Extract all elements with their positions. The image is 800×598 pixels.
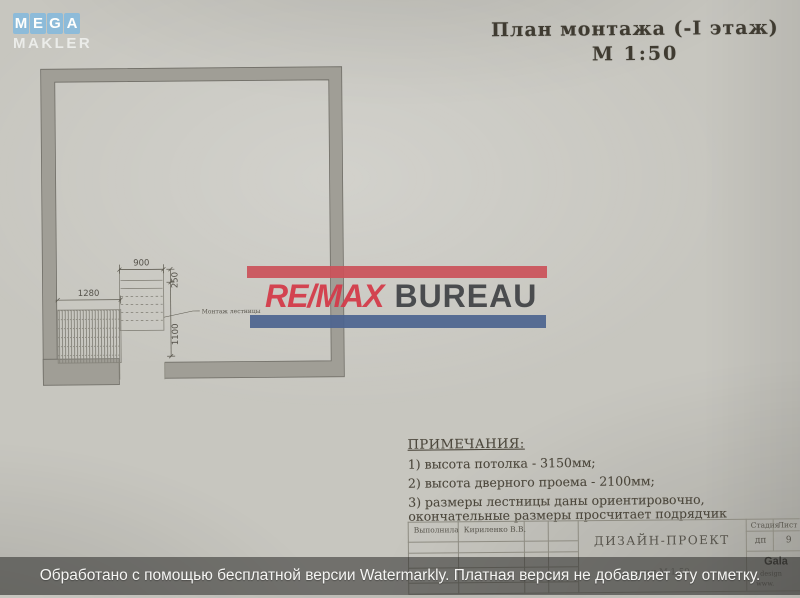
mega-tile: A — [64, 13, 80, 34]
mega-tile: G — [47, 13, 63, 34]
mega-tile: M — [13, 13, 29, 34]
remax-watermark: RE/MAX BUREAU — [247, 266, 547, 328]
stairs-leader-line — [164, 311, 200, 317]
remax-blue-bar — [250, 315, 546, 328]
dimension-1280-text: 1280 — [78, 289, 100, 299]
remax-bureau-text: BUREAU — [394, 278, 537, 314]
dimension-1100-text: 1100 — [171, 323, 181, 345]
remax-red-bar — [247, 266, 547, 278]
mega-makler-logo: M E G A MAKLER — [13, 13, 92, 52]
note-item: 2) высота дверного проема - 2100мм; — [408, 473, 753, 491]
watermarkly-bar: Обработано с помощью бесплатной версии W… — [0, 557, 800, 595]
dimension-250-text: 250 — [170, 272, 180, 288]
mega-logo-subtitle: MAKLER — [13, 35, 92, 52]
list-value: 9 — [786, 535, 792, 545]
mega-tile: E — [30, 13, 46, 34]
bottom-wall-opening — [120, 361, 165, 381]
author-value: Кириленко В.В. — [464, 525, 526, 535]
author-label: Выполнила — [414, 525, 459, 534]
list-label: Лист — [778, 520, 798, 529]
stair-flight-upper — [119, 269, 164, 330]
note-item: 1) высота потолка - 3150мм; — [408, 454, 753, 472]
mega-logo-tiles: M E G A — [13, 13, 92, 34]
remax-wordmark: RE/MAX — [265, 278, 383, 314]
drawing-scale: М 1:50 — [470, 42, 800, 67]
drawing-title: План монтажа (-I этаж) М 1:50 — [470, 17, 800, 67]
stage-label: Стадия — [751, 520, 780, 529]
notes-section: ПРИМЕЧАНИЯ: 1) высота потолка - 3150мм; … — [408, 434, 754, 529]
drawing-title-line1: План монтажа (-I этаж) — [470, 17, 800, 42]
project-title: ДИЗАЙН-ПРОЕКТ — [578, 533, 746, 548]
stage-value: дп — [755, 536, 767, 546]
dimension-900-text: 900 — [133, 258, 149, 268]
notes-heading: ПРИМЕЧАНИЯ: — [408, 434, 753, 453]
stair-flight-lower — [58, 310, 121, 364]
floor-plan: 900 1280 250 1100 Монтаж лестницы — [35, 61, 352, 388]
watermarkly-text: Обработано с помощью бесплатной версии W… — [40, 567, 761, 585]
